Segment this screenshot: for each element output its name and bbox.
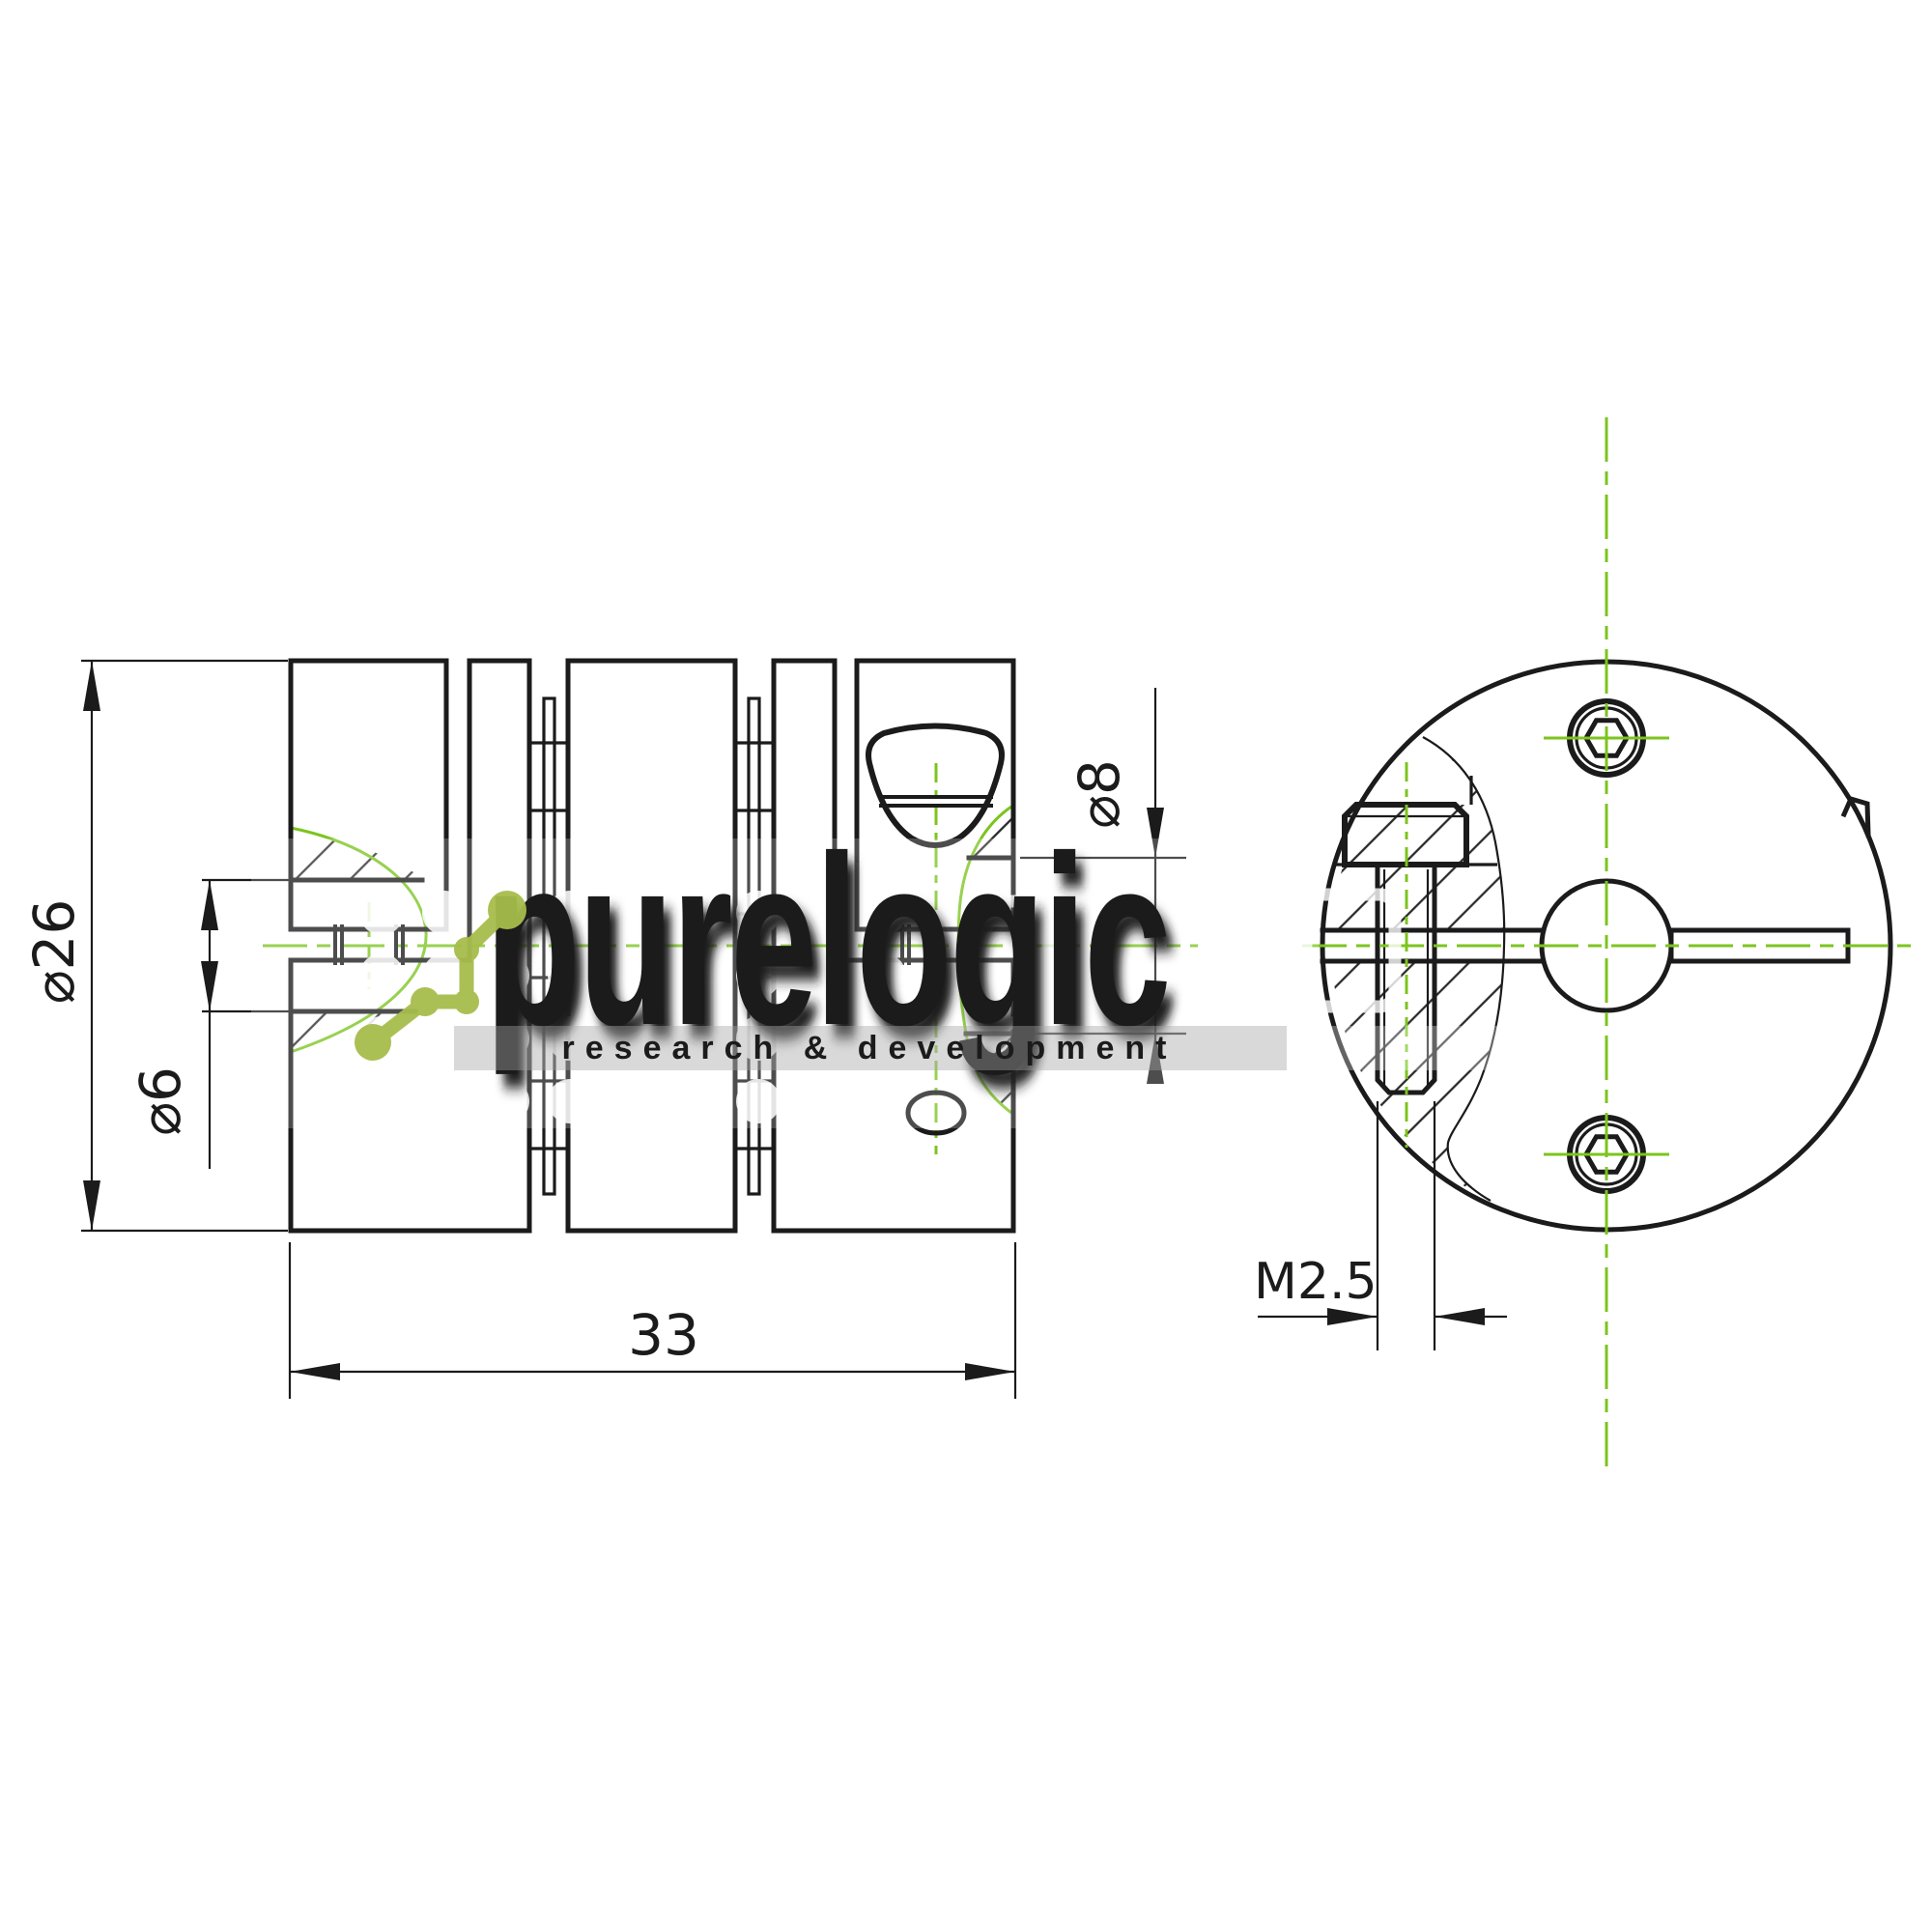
- dimension-outer-diameter: ⌀26: [21, 661, 288, 1231]
- overall-length-label: 33: [628, 1302, 699, 1368]
- bore-left-label: ⌀6: [128, 1066, 193, 1136]
- tagline-bar-fade: [1290, 1026, 1507, 1070]
- dimension-clamp-thread: M2.5: [1254, 1101, 1507, 1350]
- watermark-tagline: research & development: [562, 1030, 1178, 1066]
- clamp-thread-label: M2.5: [1254, 1253, 1378, 1311]
- technical-drawing: ⌀26 ⌀6 ⌀8 33 M2.5: [0, 0, 1932, 1932]
- drawing-page: ⌀26 ⌀6 ⌀8 33 M2.5: [0, 0, 1932, 1932]
- outer-diameter-label: ⌀26: [21, 899, 87, 1005]
- dimension-overall-length: 33: [290, 1242, 1015, 1399]
- watermark: purelogic purelogic research & developme…: [251, 806, 1507, 1128]
